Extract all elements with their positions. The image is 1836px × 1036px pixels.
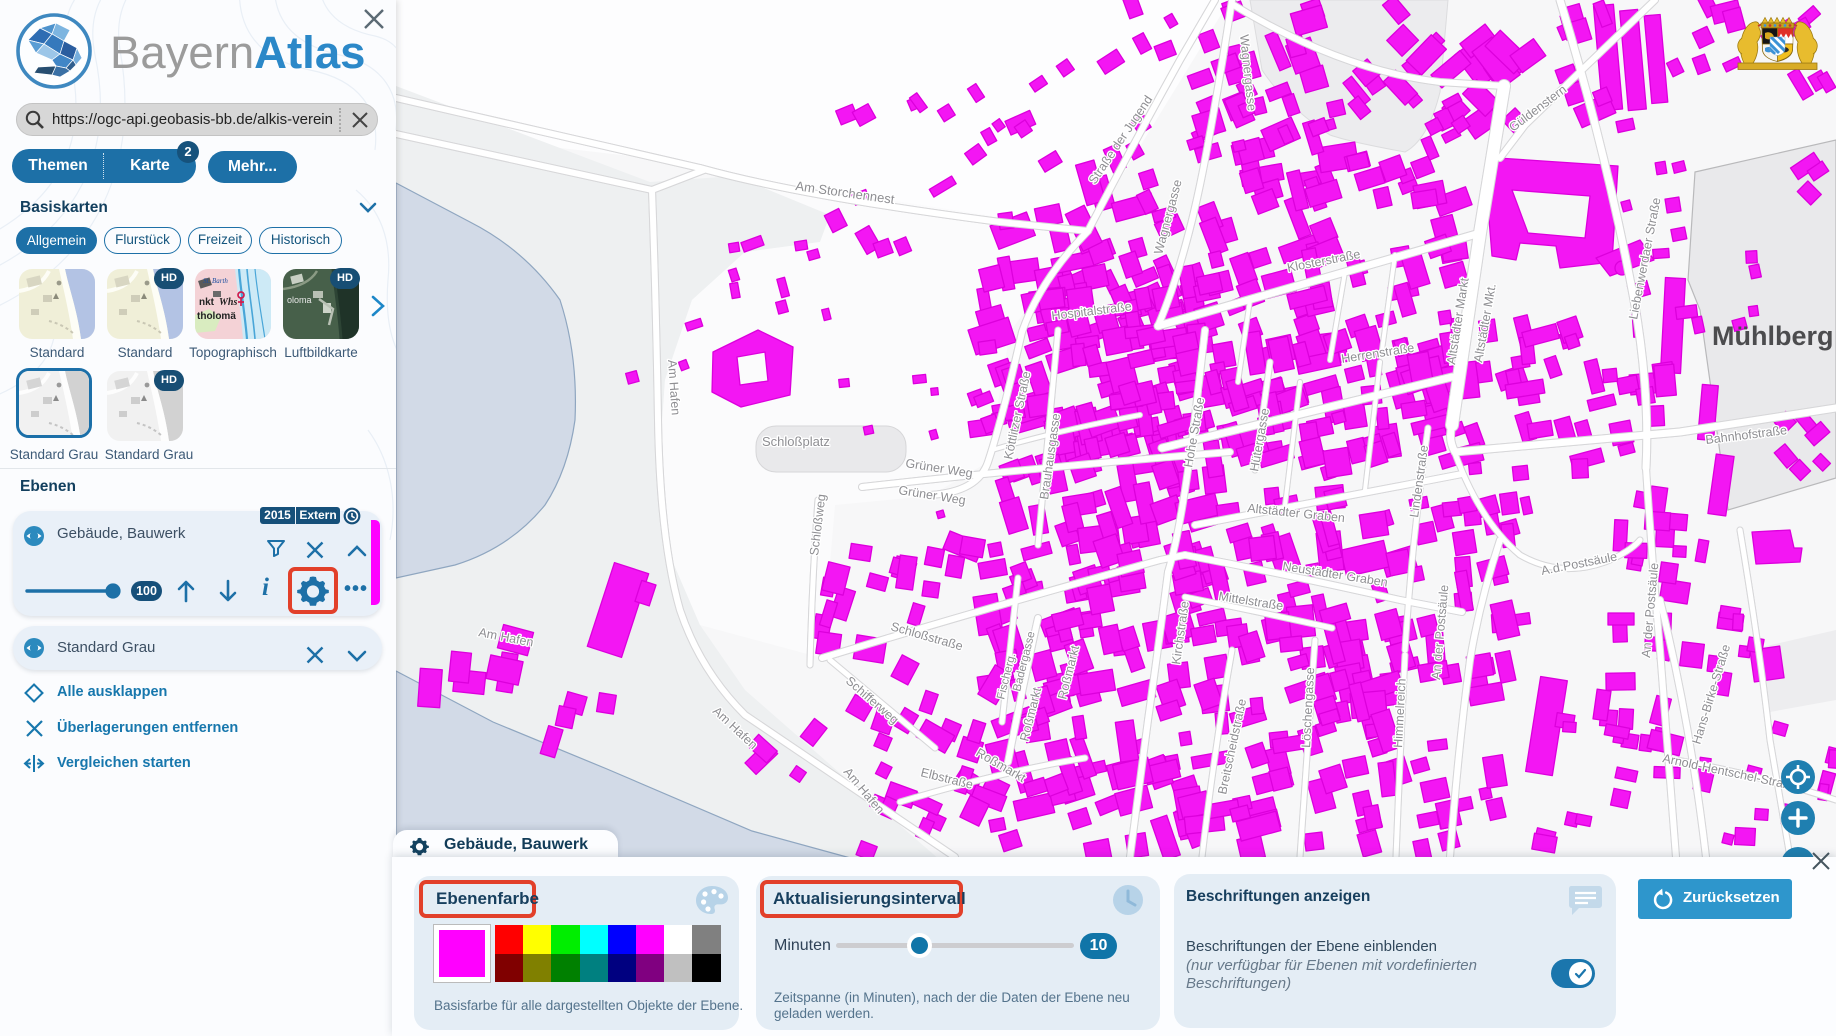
svg-text:tholomä: tholomä <box>197 311 236 322</box>
svg-text:nkt: nkt <box>199 297 215 308</box>
svg-text:oloma: oloma <box>287 295 312 305</box>
svg-text:Whs: Whs <box>219 297 237 308</box>
svg-text:Schloßplatz: Schloßplatz <box>762 434 830 449</box>
svg-text:Mühlberg: Mühlberg <box>1712 321 1834 351</box>
svg-text:St. Barth: St. Barth <box>203 277 228 285</box>
svg-text:BayernAtlas: BayernAtlas <box>110 27 365 78</box>
